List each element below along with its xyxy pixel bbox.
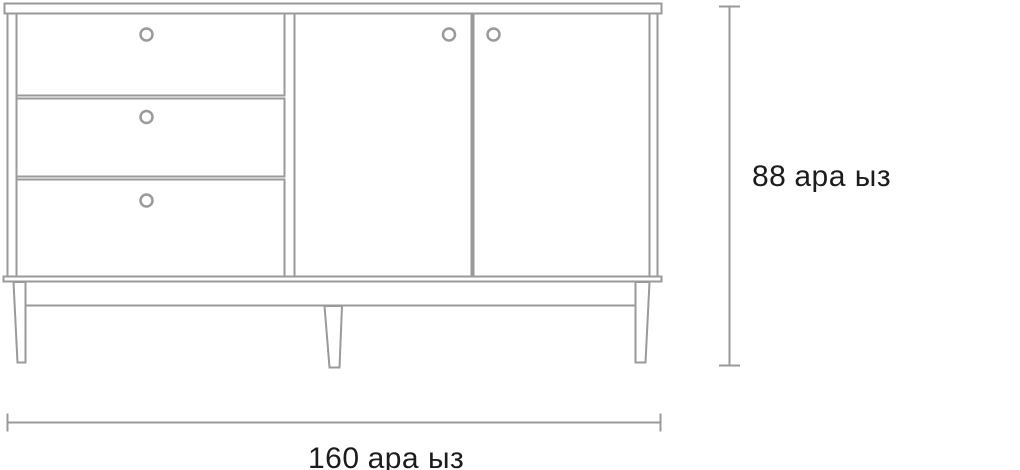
- width-value: 160: [308, 442, 360, 470]
- drawer-front-3: [17, 180, 285, 277]
- cabinet-tabletop: [5, 4, 662, 14]
- width-unit: ара ыз: [368, 442, 465, 470]
- width-dimension-line: [8, 414, 661, 432]
- door-right-knob-icon: [488, 29, 500, 41]
- sideboard-drawing: [0, 0, 1020, 470]
- drawer-1-knob-icon: [141, 29, 153, 41]
- drawer-3-knob-icon: [141, 195, 153, 207]
- height-dimension-label: 88ара ыз: [752, 162, 891, 192]
- width-dimension-label: 160ара ыз: [308, 444, 464, 470]
- door-left-knob-icon: [443, 29, 455, 41]
- leg-left: [14, 282, 26, 363]
- height-unit: ара ыз: [794, 160, 891, 193]
- height-dimension-line: [719, 7, 740, 366]
- leg-right: [636, 282, 650, 363]
- door-right: [474, 14, 650, 277]
- leg-middle: [325, 306, 343, 368]
- drawer-front-2: [17, 99, 285, 177]
- door-left: [295, 14, 472, 277]
- height-value: 88: [752, 160, 786, 193]
- drawer-front-1: [17, 14, 285, 96]
- drawer-2-knob-icon: [141, 111, 153, 123]
- furniture-dimension-diagram: 160ара ыз 88ара ыз: [0, 0, 1020, 470]
